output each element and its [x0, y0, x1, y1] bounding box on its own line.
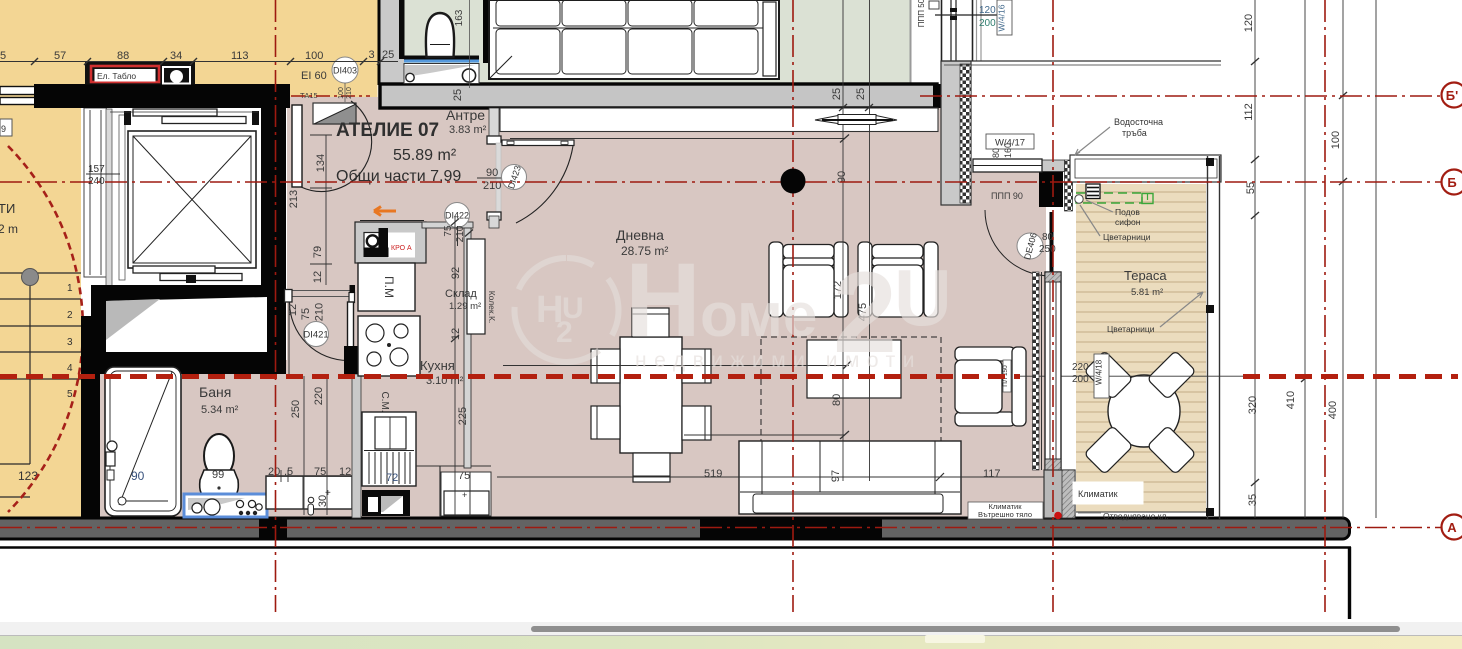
svg-text:С.М.: С.М. [379, 391, 390, 412]
svg-text:DI421: DI421 [303, 330, 328, 341]
svg-text:55.89 m²: 55.89 m² [393, 147, 457, 164]
svg-text:EI 60: EI 60 [301, 70, 327, 82]
svg-text:H: H [625, 242, 701, 359]
svg-text:12: 12 [312, 271, 324, 283]
svg-text:34: 34 [170, 50, 182, 62]
svg-text:5.81 m²: 5.81 m² [1131, 287, 1163, 298]
svg-text:100: 100 [338, 87, 345, 99]
svg-text:163: 163 [454, 9, 465, 26]
svg-text:Цветарници: Цветарници [1103, 232, 1151, 242]
svg-text:Кухня: Кухня [420, 358, 455, 373]
svg-text:Ел. Табло: Ел. Табло [97, 71, 136, 81]
svg-text:100: 100 [305, 50, 323, 62]
svg-text:25: 25 [382, 49, 394, 61]
svg-text:210: 210 [314, 303, 326, 321]
svg-text:112: 112 [1243, 103, 1255, 121]
svg-text:ППП 90: ППП 90 [991, 191, 1023, 201]
svg-text:U: U [894, 253, 952, 342]
svg-text:Цветарници: Цветарници [1107, 324, 1155, 334]
svg-text:4: 4 [67, 363, 73, 374]
svg-text:80: 80 [831, 394, 843, 406]
svg-text:250: 250 [290, 400, 302, 418]
svg-text:недвижими имоти: недвижими имоти [635, 349, 922, 372]
svg-text:+: + [462, 490, 467, 500]
svg-text:9: 9 [1, 124, 6, 134]
svg-text:25: 25 [452, 89, 464, 101]
svg-text:5: 5 [0, 50, 6, 62]
svg-text:410: 410 [1285, 391, 1297, 409]
svg-text:80: 80 [1042, 232, 1054, 243]
svg-text:Колек.К.: Колек.К. [487, 291, 497, 324]
svg-text:213: 213 [288, 190, 300, 208]
svg-text:113: 113 [231, 50, 249, 62]
svg-text:519: 519 [704, 468, 722, 480]
svg-text:Тераса: Тераса [1124, 268, 1167, 283]
svg-text:+: + [325, 488, 331, 499]
svg-text:Вътрешно тяло: Вътрешно тяло [978, 510, 1032, 519]
svg-text:75: 75 [458, 470, 470, 482]
svg-text:Склад: Склад [445, 288, 477, 300]
svg-text:Подов: Подов [1115, 207, 1140, 217]
svg-text:120: 120 [1243, 14, 1255, 32]
svg-text:200: 200 [979, 18, 996, 29]
svg-text:72: 72 [386, 472, 398, 484]
svg-text:100: 100 [1330, 131, 1342, 149]
svg-text:Баня: Баня [199, 384, 231, 400]
svg-text:тръба: тръба [1122, 128, 1147, 138]
svg-text:225: 225 [457, 407, 469, 425]
svg-text:123: 123 [18, 469, 38, 483]
svg-text:80: 80 [991, 148, 1001, 158]
svg-text:П.М: П.М [382, 276, 396, 298]
svg-text:220: 220 [1072, 362, 1089, 373]
svg-text:210: 210 [346, 87, 353, 99]
svg-text:5.34 m²: 5.34 m² [201, 404, 239, 416]
svg-text:12: 12 [287, 304, 299, 316]
svg-text:200: 200 [1072, 374, 1089, 385]
svg-text:35: 35 [1247, 494, 1259, 506]
svg-text:АТЕЛИЕ 07: АТЕЛИЕ 07 [336, 120, 439, 141]
svg-text:КРО А: КРО А [391, 245, 412, 252]
svg-text:75: 75 [443, 225, 454, 237]
svg-text:5: 5 [67, 389, 73, 400]
svg-text:Отводняване кл.: Отводняване кл. [1103, 511, 1169, 521]
svg-text:79: 79 [312, 246, 324, 258]
svg-text:Дневна: Дневна [616, 227, 664, 243]
svg-text:120: 120 [979, 5, 996, 16]
svg-text:2 m: 2 m [0, 222, 18, 236]
svg-text:97: 97 [830, 470, 842, 482]
svg-text:57: 57 [54, 50, 66, 62]
svg-text:25: 25 [831, 88, 843, 100]
svg-text:12: 12 [339, 466, 351, 478]
svg-text:3: 3 [369, 49, 375, 61]
svg-text:3: 3 [67, 337, 73, 348]
svg-text:55: 55 [1245, 182, 1257, 194]
svg-text:1.29 m²: 1.29 m² [449, 301, 481, 312]
svg-text:75: 75 [314, 466, 326, 478]
svg-text:210: 210 [455, 225, 466, 242]
svg-text:20: 20 [268, 466, 280, 478]
svg-text:2: 2 [556, 316, 573, 349]
svg-text:ТИ: ТИ [0, 201, 15, 216]
svg-text:DI403: DI403 [333, 66, 357, 76]
svg-text:,5: ,5 [284, 466, 293, 478]
svg-text:90: 90 [131, 469, 145, 483]
svg-text:ППП 50: ППП 50 [917, 0, 926, 27]
svg-text:157: 157 [88, 164, 105, 175]
svg-text:Антре: Антре [446, 107, 485, 123]
svg-text:Б: Б [1447, 175, 1456, 190]
svg-text:400: 400 [1327, 401, 1339, 419]
svg-text:сифон: сифон [1115, 217, 1141, 227]
svg-text:3.83 m²: 3.83 m² [449, 124, 487, 136]
svg-text:А: А [1447, 520, 1457, 535]
svg-text:оме: оме [700, 281, 817, 350]
svg-text:99: 99 [212, 469, 224, 481]
svg-text:134: 134 [315, 154, 327, 172]
svg-text:Климатик: Климатик [1078, 489, 1118, 499]
svg-text:W/4/18: W/4/18 [1095, 359, 1104, 385]
svg-text:1: 1 [67, 283, 73, 294]
svg-text:90: 90 [486, 167, 498, 179]
svg-text:160: 160 [1003, 143, 1013, 158]
svg-text:320: 320 [1247, 396, 1259, 414]
svg-text:25: 25 [855, 88, 867, 100]
svg-text:117: 117 [983, 468, 1001, 480]
svg-text:88: 88 [117, 50, 129, 62]
svg-text:75: 75 [300, 308, 312, 320]
svg-text:Водосточна: Водосточна [1114, 117, 1163, 127]
svg-text:2: 2 [67, 310, 73, 321]
svg-text:DI422: DI422 [445, 211, 469, 221]
svg-text:W/4/16: W/4/16 [997, 4, 1007, 31]
svg-text:220: 220 [313, 387, 325, 405]
svg-text:Б': Б' [1446, 88, 1458, 103]
svg-text:92: 92 [450, 267, 462, 279]
